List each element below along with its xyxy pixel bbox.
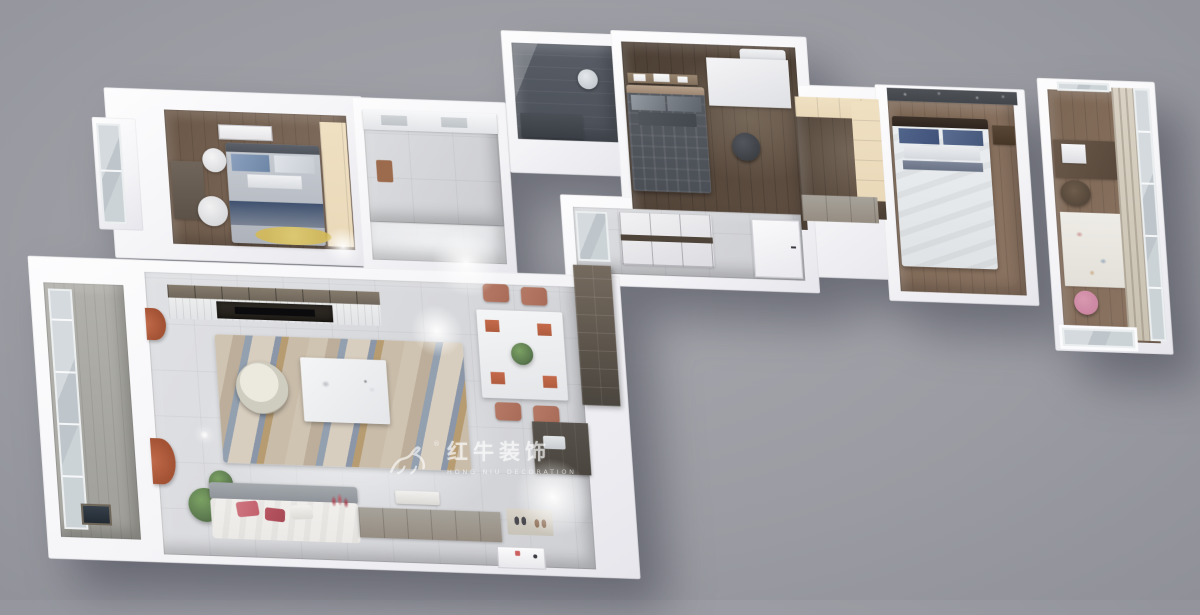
- coral-branch-decor: [327, 493, 352, 510]
- shoe-cabinet: [358, 507, 502, 542]
- floorplan-render-canvas: ® 红牛装饰 HONG NIU DECORATION: [0, 0, 1200, 600]
- door-handle: [791, 246, 796, 248]
- hallway-door: [751, 219, 803, 279]
- watermark-tagline-text: HONG NIU DECORATION: [447, 468, 577, 476]
- shower-vanity-dark: [520, 113, 584, 139]
- bull-logo-icon: [388, 442, 426, 478]
- glass-display-cabinet: [575, 211, 610, 262]
- coffee-table: [300, 357, 390, 424]
- watermark: ® 红牛装饰 HONG NIU DECORATION: [388, 442, 577, 478]
- watermark-brand-text: 红牛装饰: [447, 442, 577, 463]
- watermark-texts: 红牛装饰 HONG NIU DECORATION: [447, 442, 577, 476]
- entry-door-logo-dot: [515, 551, 520, 556]
- registered-mark: ®: [433, 440, 440, 448]
- wall-art-frame: [218, 124, 273, 141]
- sofa-pillow-rose-2: [265, 507, 285, 522]
- dining-chair-top-2: [520, 287, 547, 306]
- sofa-pillow-white: [290, 505, 314, 520]
- nightstand: [992, 125, 1015, 145]
- study-desk-white: [706, 57, 791, 108]
- sofa-pillow-rose-1: [235, 500, 260, 517]
- entry-door-handle: [533, 554, 537, 558]
- study-window-top: [1057, 82, 1110, 93]
- entry-bench: [395, 491, 440, 506]
- entry-door: [497, 546, 547, 570]
- master-bed: [892, 116, 998, 270]
- white-art-rug: [1060, 212, 1127, 288]
- closet-drawer-unit: [801, 195, 879, 224]
- bed-plaid: [626, 85, 711, 194]
- balcony-floor-picture: [81, 504, 112, 526]
- apartment-shell: [8, 5, 1200, 615]
- floor-lamp: [199, 430, 210, 440]
- bath-floor-mat: [376, 160, 394, 183]
- apartment-model: [8, 5, 1200, 615]
- recessed-bottom-window: [1062, 328, 1135, 349]
- dining-chair-bottom-1: [495, 402, 522, 421]
- printer: [1061, 144, 1086, 164]
